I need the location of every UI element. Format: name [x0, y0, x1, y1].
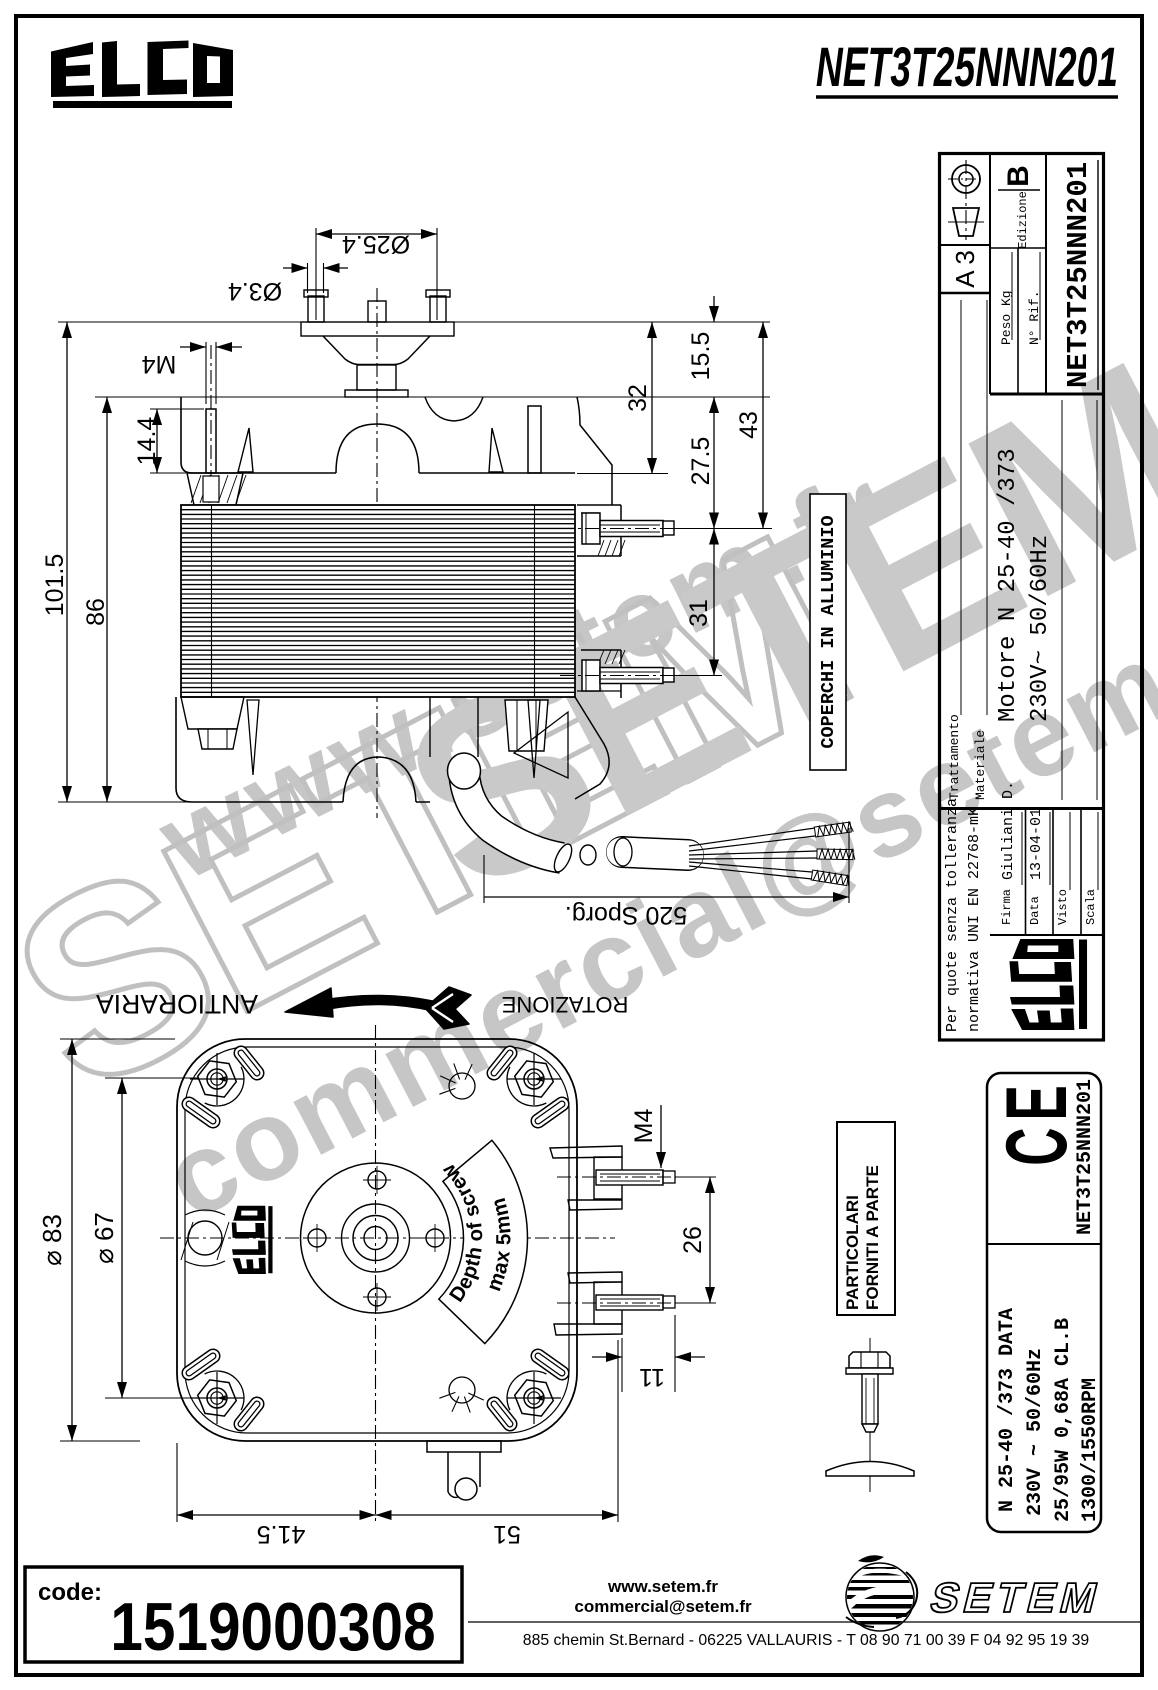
- svg-text:normativa UNI EN 22768-mK: normativa UNI EN 22768-mK: [966, 807, 983, 1032]
- svg-text:B: B: [1002, 165, 1035, 187]
- svg-text:Materiale: Materiale: [973, 730, 988, 800]
- svg-text:13-04-01: 13-04-01: [1028, 808, 1045, 880]
- svg-text:43: 43: [735, 411, 763, 439]
- svg-text:Motore N 25-40 /373: Motore N 25-40 /373: [995, 448, 1022, 722]
- svg-text:Ø3.4: Ø3.4: [228, 277, 282, 305]
- svg-text:Scala: Scala: [1084, 889, 1098, 925]
- svg-text:101.5: 101.5: [41, 554, 69, 617]
- svg-text:26: 26: [679, 1226, 707, 1254]
- svg-text:230V~ 50/60Hz: 230V~ 50/60Hz: [1027, 535, 1054, 722]
- svg-text:ANTIORARIA: ANTIORARIA: [96, 989, 258, 1019]
- svg-text:41.5: 41.5: [257, 1520, 306, 1548]
- svg-text:NET3T25NNN201: NET3T25NNN201: [1062, 162, 1095, 388]
- svg-text:NET3T25NNN201: NET3T25NNN201: [816, 37, 1118, 99]
- svg-text:A 3: A 3: [950, 250, 980, 288]
- svg-text:Visto: Visto: [1056, 889, 1070, 925]
- svg-text:M4: M4: [142, 350, 177, 378]
- svg-text:86: 86: [82, 598, 110, 626]
- svg-text:FORNITI A PARTE: FORNITI A PARTE: [863, 1165, 882, 1310]
- svg-text:PARTICOLARI: PARTICOLARI: [843, 1195, 862, 1310]
- svg-text:Ø25.4: Ø25.4: [342, 230, 410, 258]
- svg-text:Trattamento: Trattamento: [947, 714, 962, 800]
- svg-text:NET3T25NNN201: NET3T25NNN201: [1074, 1079, 1097, 1235]
- svg-text:25/95W 0,68A CL.B: 25/95W 0,68A CL.B: [1052, 1318, 1075, 1522]
- svg-text:ROTAZIONE: ROTAZIONE: [502, 992, 629, 1017]
- svg-text:Giuliani D.: Giuliani D.: [1000, 781, 1017, 880]
- svg-text:885 chemin St.Bernard - 0622: 885 chemin St.Bernard - 06225 VALLAURIS …: [523, 1632, 1090, 1649]
- svg-text:M4: M4: [630, 1109, 658, 1144]
- svg-text:32: 32: [624, 384, 652, 412]
- svg-text:31: 31: [685, 599, 713, 627]
- svg-text:⌀ 83: ⌀ 83: [37, 1214, 67, 1266]
- svg-text:SETEM: SETEM: [926, 1575, 1107, 1622]
- svg-text:code:: code:: [38, 1579, 102, 1606]
- svg-text:51: 51: [493, 1520, 521, 1548]
- svg-text:CE: CE: [989, 1078, 1085, 1166]
- svg-text:Firma: Firma: [1000, 889, 1014, 925]
- svg-text:www.setem.fr: www.setem.fr: [607, 1577, 718, 1596]
- svg-text:commercial@setem.fr: commercial@setem.fr: [574, 1597, 752, 1616]
- svg-text:N 25-40 /373 DATA: N 25-40 /373 DATA: [996, 1308, 1019, 1512]
- svg-text:230V ~ 50/60Hz: 230V ~ 50/60Hz: [1024, 1348, 1047, 1516]
- svg-text:Per quote senza tolleranza: Per quote senza tolleranza: [944, 798, 961, 1032]
- svg-text:1300/1550RPM: 1300/1550RPM: [1079, 1378, 1102, 1522]
- svg-text:Edizione: Edizione: [1016, 191, 1030, 249]
- svg-text:11: 11: [639, 1363, 665, 1391]
- svg-text:COPERCHI IN ALLUMINIO: COPERCHI IN ALLUMINIO: [818, 515, 839, 748]
- svg-text:27.5: 27.5: [687, 437, 715, 486]
- svg-text:14.4: 14.4: [133, 417, 161, 466]
- svg-text:1519000308: 1519000308: [110, 1590, 435, 1665]
- svg-text:15.5: 15.5: [687, 332, 715, 381]
- svg-text:520 Sporg.: 520 Sporg.: [565, 901, 687, 929]
- svg-text:⌀ 67: ⌀ 67: [89, 1212, 119, 1264]
- svg-text:Data: Data: [1028, 896, 1042, 925]
